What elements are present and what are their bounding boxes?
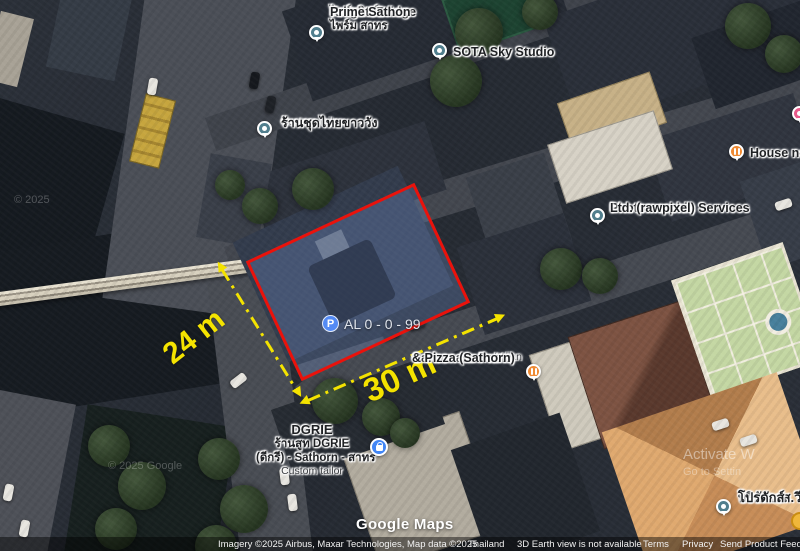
google-maps-logo[interactable]: Google Maps <box>356 516 453 533</box>
parking-poi[interactable]: AL 0 - 0 - 99 <box>322 315 421 332</box>
send-feedback-link[interactable]: Send Product Feedb <box>720 539 800 550</box>
poi-name-line: & Pizza (Sathorn) <box>412 351 515 365</box>
map-pin-icon[interactable] <box>716 499 731 514</box>
map-pin-icon[interactable] <box>257 121 272 136</box>
attribution-bar: Imagery ©2025 Airbus, Maxar Technologies… <box>0 537 800 551</box>
copyright-watermark: © 2025 Google <box>108 460 182 472</box>
dock <box>0 11 34 87</box>
poi-category: Custom tailor <box>256 465 368 478</box>
region-label: Thailand <box>468 539 504 550</box>
privacy-link[interactable]: Privacy <box>682 539 713 550</box>
poi-thai-line: ร้านสูท DGRIE <box>256 437 368 451</box>
poi-name-line: Ltd. (rawpixel) <box>610 200 695 217</box>
poi-name-line: Prime Sathon <box>330 5 411 19</box>
poi-name-line: DGRIE <box>256 423 368 437</box>
poi-thai-line: ไพร์ม สาทร <box>330 19 388 33</box>
building <box>46 0 134 81</box>
car <box>287 494 298 512</box>
map-canvas[interactable]: © 2025 © 2025 Google 24 m 30 m AL 0 - 0 … <box>0 0 800 551</box>
map-pin-icon[interactable] <box>309 25 324 40</box>
tree <box>220 485 268 533</box>
tree <box>215 170 245 200</box>
tree <box>242 188 278 224</box>
poi-label-sota: SOTA Sky Studio <box>453 45 554 59</box>
poi-name-line: โปรดักส์ <box>738 490 784 506</box>
map-pin-icon[interactable] <box>792 106 800 121</box>
poi-label-knightsbridge: KnightsBridge Prime Sathon ไนท์บริดจ์ ไพ… <box>330 5 388 33</box>
earth-view-notice: 3D Earth view is not available <box>517 539 642 550</box>
map-pin-icon[interactable] <box>432 43 447 58</box>
tree <box>390 418 420 448</box>
tree <box>725 3 771 49</box>
map-pin-icon[interactable] <box>590 208 605 223</box>
rooftop-pool-circle <box>762 305 795 338</box>
poi-label-dgrie: DGRIE ร้านสูท DGRIE (ดีกรี) - Sathorn - … <box>256 423 368 478</box>
road <box>0 388 76 551</box>
poi-label-house-no: House no <box>750 146 800 160</box>
tree <box>292 168 334 210</box>
poi-label-custom-tailor: ร้านชุดไทยขาววัง Custom tailor <box>281 116 343 129</box>
tree <box>765 35 800 73</box>
tree <box>312 378 358 424</box>
poi-label-carbonaro: Carbonaro Pasta & Pizza (Sathorn) Italia… <box>412 351 522 364</box>
tree <box>430 55 482 107</box>
activation-watermark-subtext: Go to Settin <box>683 466 741 478</box>
parking-icon <box>322 315 339 332</box>
poi-thai-line: (ดีกรี) - Sathorn - สาทร <box>256 451 368 465</box>
activation-watermark: Activate W <box>683 446 755 463</box>
shopping-bag-pin-icon[interactable] <box>370 438 388 456</box>
imagery-attribution: Imagery ©2025 Airbus, Maxar Technologies… <box>218 539 477 550</box>
terms-link[interactable]: Terms <box>643 539 669 550</box>
copyright-watermark: © 2025 <box>14 194 50 206</box>
tree <box>540 248 582 290</box>
tree <box>582 258 618 294</box>
restaurant-pin-icon[interactable] <box>729 144 744 159</box>
tree <box>198 438 240 480</box>
restaurant-pin-icon[interactable] <box>526 364 541 379</box>
parking-label: AL 0 - 0 - 99 <box>344 316 421 332</box>
poi-name-line: ร้านชุดไทยขาววัง <box>281 116 377 130</box>
